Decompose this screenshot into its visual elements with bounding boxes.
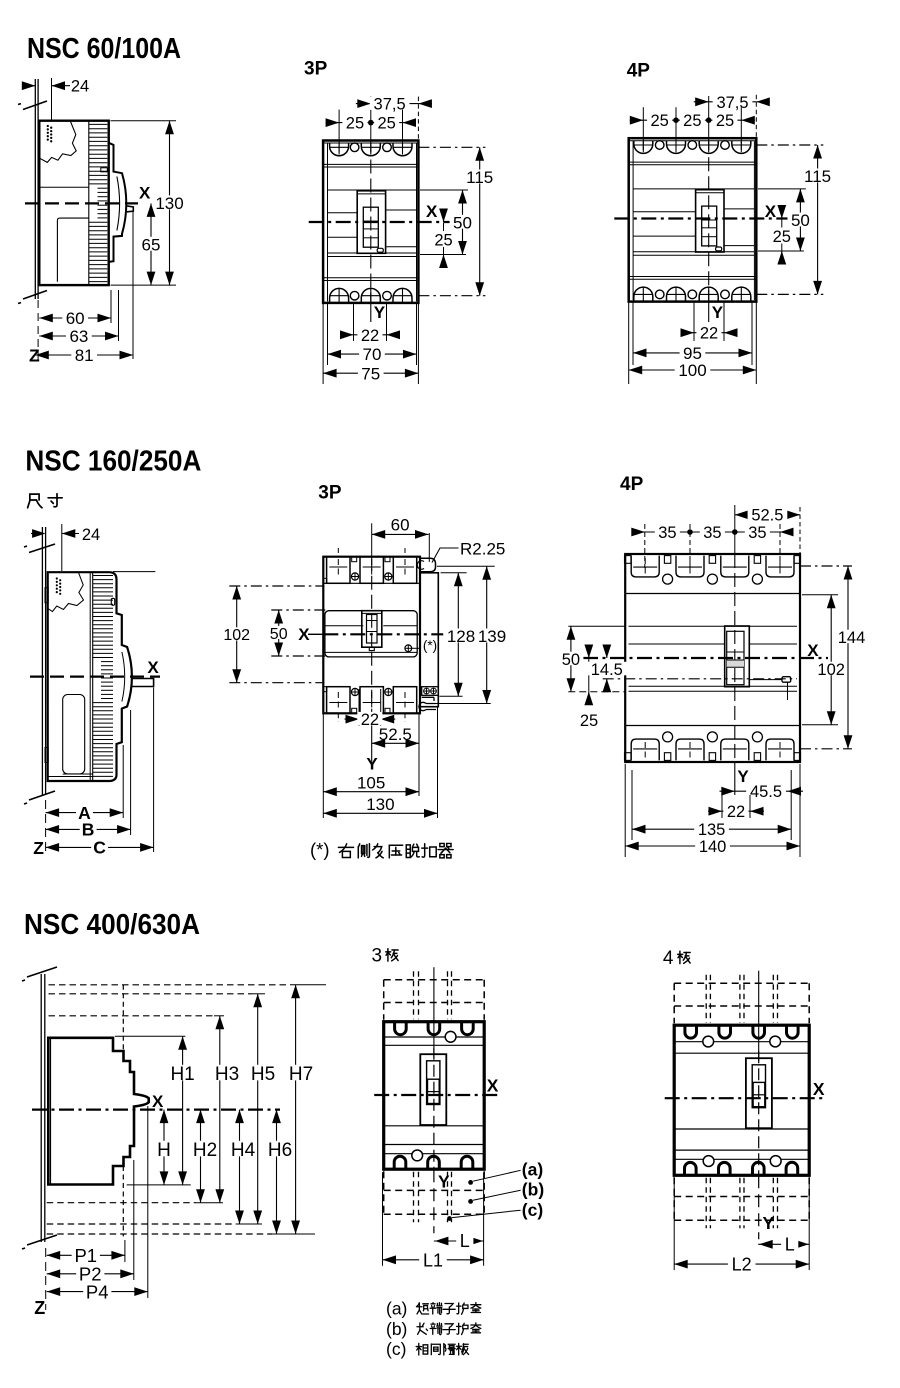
svg-text:50: 50 — [453, 213, 472, 232]
svg-text:3: 3 — [372, 946, 383, 967]
svg-text:50: 50 — [270, 626, 288, 643]
svg-text:4P: 4P — [620, 474, 644, 495]
svg-text:X: X — [807, 641, 819, 660]
svg-text:(c): (c) — [386, 1339, 406, 1359]
svg-text:115: 115 — [804, 167, 831, 186]
svg-text:52.5: 52.5 — [379, 725, 412, 744]
svg-text:115: 115 — [466, 168, 493, 187]
svg-text:L: L — [785, 1234, 795, 1254]
svg-text:X: X — [813, 1079, 825, 1099]
svg-text:139: 139 — [478, 627, 506, 646]
svg-text:Y: Y — [763, 1213, 775, 1233]
svg-text:35: 35 — [748, 524, 766, 542]
svg-text:X: X — [487, 1076, 499, 1096]
svg-text:(*): (*) — [423, 638, 437, 653]
svg-text:75: 75 — [361, 364, 380, 383]
svg-text:L: L — [460, 1231, 470, 1251]
svg-text:(c): (c) — [522, 1200, 543, 1220]
svg-text:R2.25: R2.25 — [460, 540, 505, 559]
svg-text:(b): (b) — [522, 1180, 544, 1200]
svg-text:Z: Z — [33, 838, 44, 858]
svg-text:Y: Y — [374, 303, 386, 322]
svg-text:(*): (*) — [310, 839, 330, 860]
svg-text:3P: 3P — [318, 482, 342, 503]
svg-text:130: 130 — [366, 795, 394, 814]
svg-text:H: H — [157, 1140, 171, 1161]
svg-text:H7: H7 — [289, 1064, 313, 1085]
svg-text:105: 105 — [357, 774, 385, 793]
svg-text:X: X — [147, 658, 159, 677]
svg-text:X: X — [139, 183, 151, 202]
svg-text:25: 25 — [346, 115, 364, 133]
svg-text:NSC 60/100A: NSC 60/100A — [27, 33, 181, 65]
svg-text:L2: L2 — [732, 1255, 752, 1275]
svg-text:(b): (b) — [386, 1319, 407, 1339]
svg-text:144: 144 — [838, 629, 866, 647]
svg-text:60: 60 — [66, 309, 85, 328]
svg-text:22: 22 — [700, 325, 718, 343]
svg-text:C: C — [93, 838, 106, 858]
svg-text:60: 60 — [391, 516, 410, 535]
svg-text:Y: Y — [712, 303, 724, 322]
svg-text:45.5: 45.5 — [750, 783, 782, 801]
svg-text:37,5: 37,5 — [374, 96, 406, 114]
svg-text:X: X — [765, 202, 777, 221]
svg-text:(a): (a) — [522, 1159, 543, 1179]
svg-text:22: 22 — [727, 803, 745, 821]
svg-text:24: 24 — [71, 77, 89, 95]
svg-text:65: 65 — [142, 235, 161, 254]
svg-text:Z: Z — [34, 1298, 45, 1318]
svg-text:H1: H1 — [170, 1064, 194, 1085]
svg-text:130: 130 — [155, 194, 183, 213]
svg-text:70: 70 — [363, 345, 382, 364]
svg-text:NSC 160/250A: NSC 160/250A — [25, 446, 201, 478]
svg-text:H6: H6 — [268, 1140, 292, 1161]
svg-text:X: X — [426, 202, 438, 221]
svg-text:35: 35 — [703, 524, 721, 542]
svg-text:25: 25 — [773, 228, 791, 246]
svg-text:50: 50 — [562, 651, 580, 669]
svg-text:25: 25 — [650, 112, 668, 130]
svg-text:Y: Y — [366, 755, 378, 774]
svg-text:H3: H3 — [215, 1064, 239, 1085]
svg-text:Y: Y — [737, 767, 749, 786]
svg-text:128: 128 — [447, 627, 475, 646]
svg-text:25: 25 — [434, 232, 452, 250]
svg-text:25: 25 — [716, 112, 734, 130]
svg-text:100: 100 — [678, 361, 706, 380]
svg-text:B: B — [82, 820, 95, 840]
svg-text:37,5: 37,5 — [716, 94, 748, 112]
svg-text:NSC 400/630A: NSC 400/630A — [24, 909, 200, 941]
svg-text:102: 102 — [817, 661, 845, 679]
svg-text:22: 22 — [361, 711, 379, 729]
svg-text:H2: H2 — [193, 1140, 217, 1161]
svg-text:50: 50 — [791, 211, 810, 230]
svg-text:4P: 4P — [627, 61, 651, 82]
svg-text:102: 102 — [223, 627, 250, 644]
svg-text:25: 25 — [377, 115, 395, 133]
svg-text:22: 22 — [361, 327, 379, 345]
svg-text:35: 35 — [658, 524, 676, 542]
svg-text:H5: H5 — [251, 1064, 275, 1085]
svg-text:H4: H4 — [231, 1140, 256, 1161]
svg-text:Z: Z — [29, 346, 40, 366]
svg-text:L1: L1 — [423, 1250, 443, 1270]
svg-text:25: 25 — [683, 112, 701, 130]
svg-text:(a): (a) — [386, 1299, 407, 1319]
svg-text:63: 63 — [69, 327, 88, 346]
svg-text:X: X — [298, 625, 310, 644]
svg-text:3P: 3P — [304, 59, 328, 80]
svg-text:52.5: 52.5 — [751, 507, 783, 525]
svg-text:X: X — [152, 1092, 164, 1111]
svg-text:14.5: 14.5 — [591, 661, 623, 679]
svg-text:24: 24 — [82, 526, 100, 544]
svg-text:4: 4 — [663, 948, 674, 969]
svg-text:81: 81 — [75, 346, 94, 365]
svg-text:25: 25 — [580, 712, 598, 730]
svg-text:140: 140 — [699, 838, 727, 856]
svg-text:Y: Y — [438, 1171, 450, 1191]
svg-text:135: 135 — [698, 821, 726, 839]
svg-text:P4: P4 — [86, 1281, 109, 1302]
